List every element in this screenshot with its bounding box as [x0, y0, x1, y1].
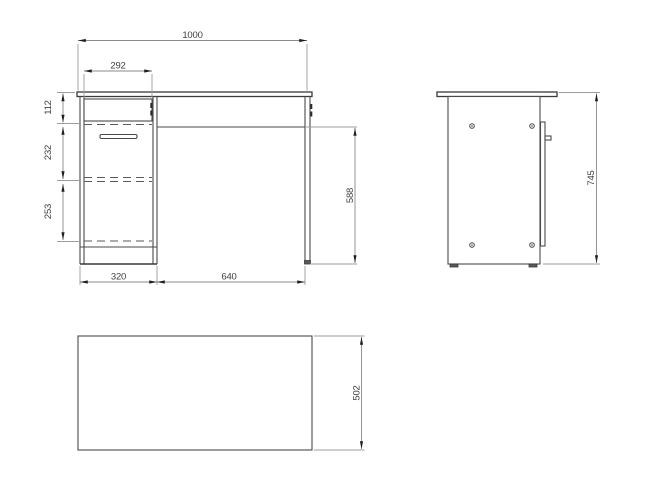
dim-drawer-height-extensions [57, 93, 81, 124]
front-edge-strip [541, 122, 546, 246]
side-view: 745 [437, 92, 600, 267]
dim-opening-width-label: 640 [221, 272, 236, 283]
drawer-front-outline [84, 99, 152, 121]
dim-overall-height: 745 [543, 93, 600, 265]
cam-fastener-dot [471, 244, 473, 246]
door-handle [100, 135, 137, 139]
dim-pedestal-width: 320 [80, 266, 157, 285]
right-side-panel [305, 97, 310, 265]
pedestal-side-panels [80, 97, 157, 265]
technical-drawing-page: 1000 292 112 232 253 588 [0, 0, 650, 488]
middle-shelf-hidden-lines [84, 178, 152, 182]
dim-overall-height-label: 745 [586, 170, 597, 185]
dim-opening-width: 640 [157, 266, 305, 285]
desktop-front-outline [77, 92, 312, 97]
top-view: 502 [78, 336, 365, 450]
dim-pedestal-width-label: 320 [111, 272, 126, 283]
cam-fastener-dot [531, 125, 533, 127]
dim-upper-door-label: 232 [43, 145, 54, 160]
dim-side-height-label: 588 [345, 188, 356, 203]
side-foot-right [529, 264, 537, 267]
dim-lower-door-section: 253 [43, 184, 81, 242]
dim-drawer-height-label: 112 [43, 100, 54, 115]
dim-upper-door-section: 232 [43, 127, 81, 181]
side-foot-left [450, 264, 458, 267]
dim-overall-width-label: 1000 [182, 30, 202, 41]
dim-depth: 502 [314, 336, 365, 450]
dim-drawer-height: 112 [43, 93, 81, 124]
dim-lower-door-label: 253 [43, 204, 54, 219]
front-view: 1000 292 112 232 253 588 [43, 30, 357, 285]
desk-technical-drawing-canvas: 1000 292 112 232 253 588 [0, 0, 650, 488]
side-panel-outline [448, 97, 540, 265]
cam-fastener-dot [471, 125, 473, 127]
desktop-plan-outline [78, 336, 312, 450]
handle-side-profile [545, 136, 551, 140]
dim-depth-label: 502 [352, 385, 363, 400]
dim-side-height: 588 [305, 127, 357, 264]
cam-fastener-dot [531, 244, 533, 246]
dim-drawer-width-label: 292 [110, 61, 125, 72]
desktop-side-outline [437, 92, 557, 97]
right-panel-foot [305, 261, 311, 265]
